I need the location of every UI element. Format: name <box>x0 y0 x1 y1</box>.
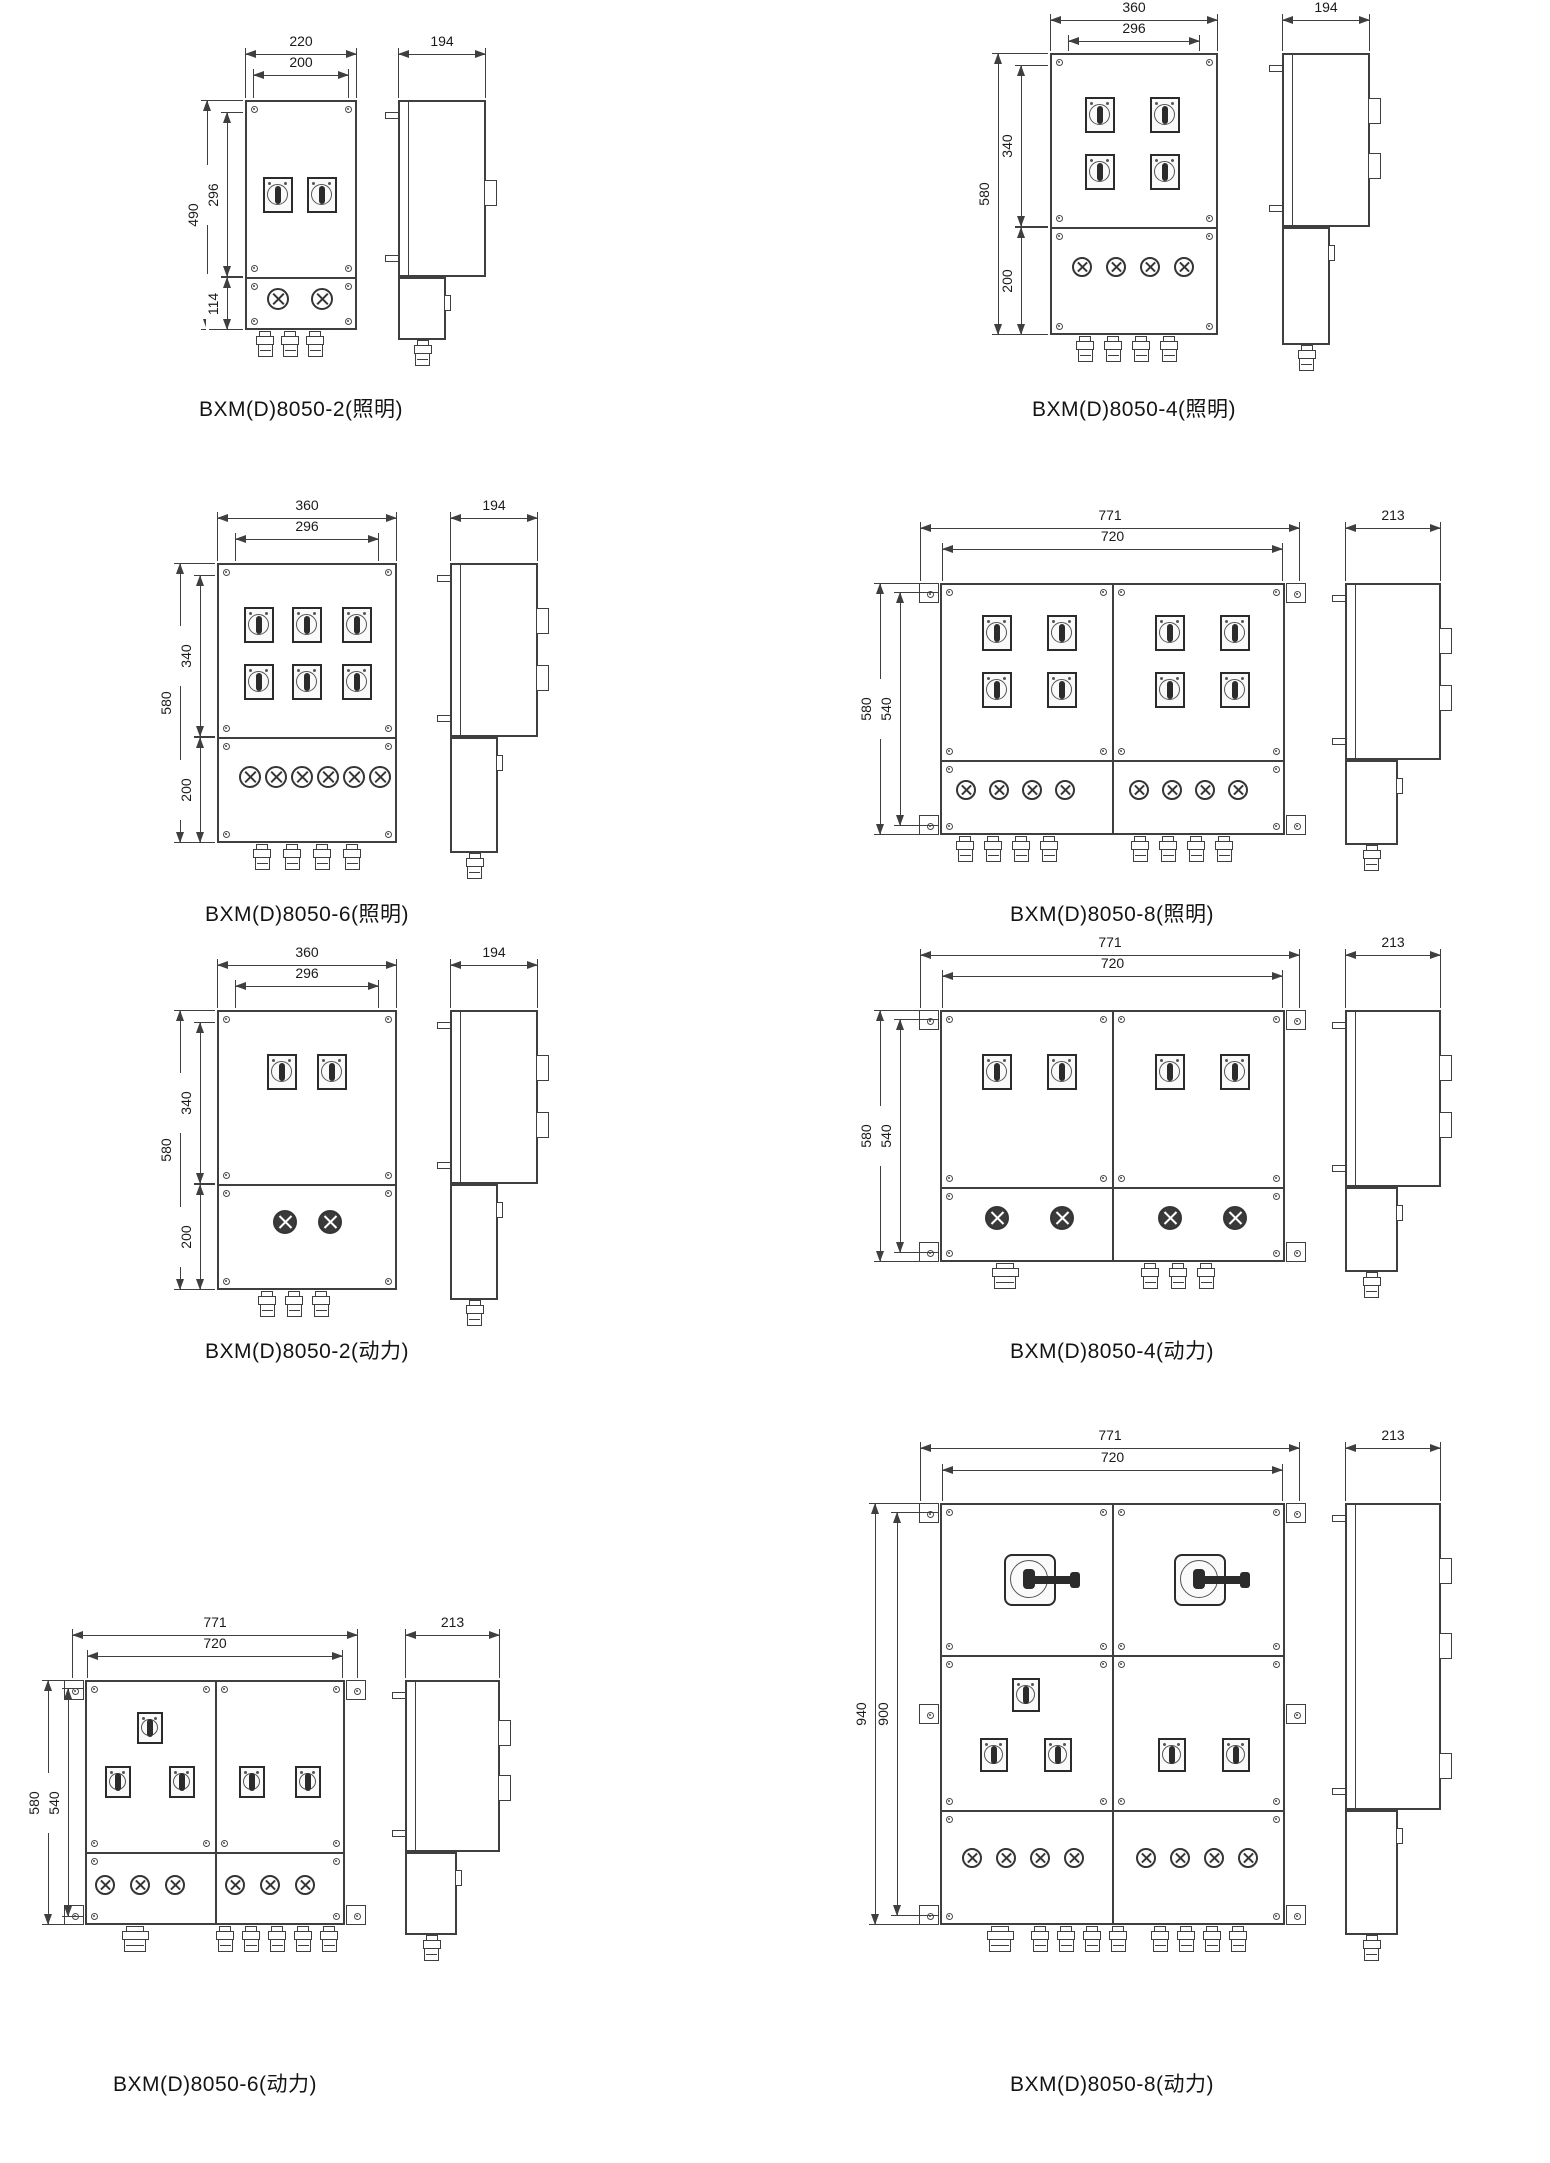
door-screw <box>1118 1175 1125 1182</box>
door-screw <box>333 1858 340 1865</box>
door-screw <box>927 823 934 830</box>
door-screw <box>251 265 258 272</box>
switch-mark <box>1155 102 1158 105</box>
dim-extension <box>1068 43 1069 51</box>
mounting-bracket <box>1286 1242 1306 1262</box>
door-screw <box>1056 233 1063 240</box>
side-mounting-tab <box>437 715 451 722</box>
rotary-switch <box>342 607 372 643</box>
switch-lever <box>1059 681 1065 699</box>
door-screw <box>1056 215 1063 222</box>
dim-label: 720 <box>1083 1450 1143 1464</box>
door-screw <box>385 1278 392 1285</box>
indicator-lamp <box>1064 1848 1084 1868</box>
switch-lever <box>275 186 281 204</box>
indicator-lamp <box>1022 780 1042 800</box>
dim-extension <box>202 1289 215 1290</box>
indicator-lamp <box>295 1875 315 1895</box>
lower-section-divider <box>85 1852 345 1854</box>
dim-extension <box>920 957 921 1008</box>
door-screw <box>1294 1913 1301 1920</box>
side-junction-box <box>536 1055 549 1081</box>
rotary-switch <box>1150 97 1180 133</box>
dim-extension <box>87 1658 88 1678</box>
dim-line <box>942 1470 1283 1471</box>
dim-line <box>1345 955 1441 956</box>
switch-mark <box>265 612 268 615</box>
lower-section-divider <box>217 1184 397 1186</box>
dim-arrow-up-icon <box>203 100 211 111</box>
switch-lever <box>1167 681 1173 699</box>
door-screw <box>946 1509 953 1516</box>
switch-lever <box>147 1719 153 1737</box>
door-screw <box>385 725 392 732</box>
dim-arrow-left-icon <box>942 1466 953 1474</box>
door-screw <box>223 1278 230 1285</box>
lower-section-divider <box>940 1187 1285 1189</box>
door-screw <box>1118 1509 1125 1516</box>
tier-divider-horizontal <box>940 1655 1285 1657</box>
dim-arrow-left-icon <box>920 951 931 959</box>
dim-arrow-left-icon <box>72 1631 83 1639</box>
switch-mark <box>313 669 316 672</box>
dim-line <box>450 965 538 966</box>
rotary-switch <box>1155 672 1185 708</box>
dim-label: 771 <box>1080 508 1140 522</box>
side-mounting-tab <box>1332 738 1346 745</box>
indicator-lamp <box>317 766 339 788</box>
lower-section-divider <box>1050 227 1218 229</box>
indicator-lamp <box>1136 1848 1156 1868</box>
switch-mark <box>312 1771 315 1774</box>
pushbutton <box>1158 1206 1182 1230</box>
dim-extension <box>942 1472 943 1501</box>
dim-extension <box>942 551 943 581</box>
indicator-lamp <box>1030 1848 1050 1868</box>
dim-extension <box>1299 1450 1300 1501</box>
switch-mark <box>1241 620 1244 623</box>
dim-arrow-left-icon <box>217 514 228 522</box>
switch-lever <box>994 681 1000 699</box>
dim-extension <box>877 1924 938 1925</box>
door-screw <box>385 1016 392 1023</box>
door-screw <box>946 1816 953 1823</box>
indicator-lamp <box>1228 780 1248 800</box>
switch-mark <box>284 182 287 185</box>
mounting-bracket <box>1286 583 1306 603</box>
side-cover-line <box>408 102 409 275</box>
switch-mark <box>1063 1743 1066 1746</box>
door-screw <box>385 1172 392 1179</box>
lower-section-divider <box>940 1810 1285 1812</box>
dim-arrow-up-icon <box>994 53 1002 64</box>
dim-label: 580 <box>859 679 873 739</box>
door-screw <box>946 1643 953 1650</box>
side-junction-box <box>1439 1633 1452 1659</box>
door-screw <box>91 1858 98 1865</box>
switch-mark <box>249 612 252 615</box>
dim-extension <box>209 100 243 101</box>
switch-mark <box>300 1771 303 1774</box>
switch-mark <box>249 669 252 672</box>
cable-gland-ridge <box>1108 355 1119 356</box>
side-view-body <box>1345 583 1441 760</box>
door-screw <box>223 725 230 732</box>
door-screw <box>946 748 953 755</box>
door-screw <box>1118 1661 1125 1668</box>
door-screw <box>1100 589 1107 596</box>
door-screw <box>1273 1509 1280 1516</box>
dim-extension <box>342 1658 343 1678</box>
rotary-switch <box>982 1054 1012 1090</box>
side-cover-line <box>460 1012 461 1182</box>
dim-extension <box>1282 978 1283 1008</box>
dim-label: 194 <box>464 498 524 512</box>
side-junction-box <box>1368 98 1381 124</box>
side-lower-body <box>450 1184 498 1300</box>
switch-mark <box>1225 1059 1228 1062</box>
dim-extension <box>356 56 357 98</box>
door-screw <box>223 1016 230 1023</box>
indicator-lamp <box>1129 780 1149 800</box>
indicator-lamp <box>267 288 289 310</box>
cable-gland-ridge <box>347 863 358 864</box>
dim-line <box>998 53 999 335</box>
dim-label: 771 <box>1080 935 1140 949</box>
dim-extension <box>1440 957 1441 1008</box>
door-screw <box>1100 1798 1107 1805</box>
door-screw <box>1100 1509 1107 1516</box>
indicator-lamp <box>260 1875 280 1895</box>
cable-gland-ridge <box>1301 364 1312 365</box>
door-screw <box>946 1798 953 1805</box>
rotary-switch <box>342 664 372 700</box>
side-junction-box <box>1439 1558 1452 1584</box>
cable-gland-ridge <box>262 1310 273 1311</box>
cable-gland-ridge <box>469 1319 480 1320</box>
door-screw <box>1273 1175 1280 1182</box>
side-view-body <box>398 100 486 277</box>
door-screw <box>354 1688 361 1695</box>
panel-divider-vertical <box>1112 583 1114 835</box>
door-screw <box>1273 1193 1280 1200</box>
dim-line <box>450 518 538 519</box>
switch-mark <box>1163 1743 1166 1746</box>
dim-label: 220 <box>271 34 331 48</box>
mounting-bracket <box>919 1010 939 1030</box>
cable-gland-ridge <box>1233 1945 1244 1946</box>
rotary-switch <box>292 607 322 643</box>
door-screw <box>251 318 258 325</box>
door-screw <box>927 1712 934 1719</box>
dim-arrow-up-icon <box>871 1503 879 1514</box>
cable-gland-ridge <box>1366 1954 1377 1955</box>
dim-extension <box>1299 957 1300 1008</box>
door-screw <box>927 1250 934 1257</box>
diagram-caption: BXM(D)8050-2(照明) <box>131 397 471 423</box>
dim-extension <box>1023 65 1048 66</box>
side-view-body <box>1345 1010 1441 1187</box>
dim-label: 580 <box>859 1106 873 1166</box>
switch-mark <box>1106 159 1109 162</box>
dim-extension <box>1282 551 1283 581</box>
door-screw <box>1206 59 1213 66</box>
side-latch <box>1328 245 1335 261</box>
door-screw <box>1206 215 1213 222</box>
dim-label: 580 <box>159 1120 173 1180</box>
door-screw <box>385 569 392 576</box>
cable-gland-ridge <box>1061 1945 1072 1946</box>
switch-mark <box>1160 620 1163 623</box>
dim-arrow-left-icon <box>920 1444 931 1452</box>
dim-extension <box>396 967 397 1008</box>
switch-lever <box>304 616 310 634</box>
door-screw <box>946 1175 953 1182</box>
rotary-switch <box>1220 1054 1250 1090</box>
door-screw <box>333 1913 340 1920</box>
dim-line <box>68 1688 69 1917</box>
switch-lever <box>994 1063 1000 1081</box>
switch-mark <box>985 1743 988 1746</box>
mounting-bracket <box>919 583 939 603</box>
dim-arrow-up-icon <box>196 1022 204 1033</box>
side-latch <box>444 295 451 311</box>
rotary-switch <box>1044 1738 1072 1772</box>
switch-mark <box>363 612 366 615</box>
dim-extension <box>398 56 399 98</box>
rotary-switch <box>1047 672 1077 708</box>
dim-arrow-up-icon <box>1017 227 1025 238</box>
indicator-lamp <box>225 1875 245 1895</box>
dim-line <box>1021 65 1022 227</box>
switch-mark <box>1160 1059 1163 1062</box>
dim-extension <box>882 1010 938 1011</box>
door-screw <box>221 1840 228 1847</box>
switch-mark <box>1225 620 1228 623</box>
dim-arrow-left-icon <box>450 961 461 969</box>
switch-mark <box>338 1059 341 1062</box>
dim-extension <box>348 77 349 98</box>
side-junction-box <box>498 1720 511 1746</box>
door-screw <box>345 283 352 290</box>
dim-extension <box>245 56 246 98</box>
dim-extension <box>357 1637 358 1678</box>
side-latch <box>496 1202 503 1218</box>
mounting-bracket <box>1286 815 1306 835</box>
switch-lever <box>319 186 325 204</box>
switch-lever <box>304 673 310 691</box>
switch-mark <box>1241 1743 1244 1746</box>
dim-arrow-left-icon <box>87 1652 98 1660</box>
mounting-bracket <box>919 1503 939 1523</box>
mounting-bracket <box>919 1704 939 1724</box>
pushbutton <box>1223 1206 1247 1230</box>
diagram-caption: BXM(D)8050-4(动力) <box>942 1339 1282 1365</box>
side-lower-body <box>398 277 446 340</box>
front-view-enclosure <box>1050 53 1218 335</box>
door-screw <box>1273 1913 1280 1920</box>
dim-label: 200 <box>1000 251 1014 311</box>
dim-extension <box>229 112 243 113</box>
door-screw <box>333 1840 340 1847</box>
cable-gland-ridge <box>1155 1945 1166 1946</box>
rotary-switch <box>1085 97 1115 133</box>
door-screw <box>1118 1798 1125 1805</box>
cable-gland-ridge <box>310 350 321 351</box>
dim-extension <box>50 1680 83 1681</box>
cable-gland-ridge <box>1113 1945 1124 1946</box>
rotary-switch <box>1085 154 1115 190</box>
switch-mark <box>1068 1059 1071 1062</box>
front-view-enclosure <box>217 563 397 843</box>
dim-extension <box>202 1022 215 1023</box>
dim-label: 360 <box>277 945 337 959</box>
dim-extension <box>378 988 379 1008</box>
dim-arrow-left-icon <box>920 524 931 532</box>
pushbutton <box>273 1210 297 1234</box>
cable-gland-ridge <box>1044 855 1055 856</box>
dim-arrow-left-icon <box>235 982 246 990</box>
switch-mark <box>272 1059 275 1062</box>
switch-lever <box>1232 624 1238 642</box>
dim-extension <box>229 277 243 278</box>
switch-mark <box>1171 102 1174 105</box>
door-screw <box>946 1193 953 1200</box>
door-screw <box>91 1913 98 1920</box>
mounting-bracket <box>1286 1503 1306 1523</box>
switch-mark <box>265 669 268 672</box>
side-junction-box <box>536 608 549 634</box>
switch-lever <box>256 616 262 634</box>
door-screw <box>1100 1175 1107 1182</box>
dim-label: 340 <box>179 626 193 686</box>
side-latch <box>496 755 503 771</box>
dim-extension <box>902 592 938 593</box>
dim-extension <box>378 541 379 561</box>
diagram-caption: BXM(D)8050-2(动力) <box>137 1339 477 1365</box>
dim-extension <box>450 967 451 1008</box>
dim-line <box>235 986 379 987</box>
rotary-switch <box>267 1054 297 1090</box>
door-screw <box>1118 589 1125 596</box>
dim-extension <box>877 1503 938 1504</box>
cable-gland-ridge <box>426 1954 437 1955</box>
door-screw <box>1206 323 1213 330</box>
side-view-body <box>450 563 538 737</box>
side-lower-body <box>1345 1810 1398 1935</box>
cable-gland-ridge <box>246 1945 257 1946</box>
side-view-body <box>405 1680 500 1852</box>
rotary-switch <box>105 1766 131 1798</box>
indicator-lamp <box>962 1848 982 1868</box>
indicator-lamp <box>1072 257 1092 277</box>
rotary-switch <box>1150 154 1180 190</box>
dim-extension <box>1345 530 1346 581</box>
door-screw <box>251 106 258 113</box>
switch-lever <box>1059 624 1065 642</box>
drawing-canvas: 220200490296114194 360296580340200194 36… <box>0 0 1550 2163</box>
dim-line <box>200 1184 201 1290</box>
switch-mark <box>1068 677 1071 680</box>
dim-label: 490 <box>186 185 200 245</box>
dim-arrow-left-icon <box>235 535 246 543</box>
side-mounting-tab <box>385 112 399 119</box>
cable-gland-ridge <box>126 1945 145 1946</box>
side-junction-box <box>1439 1112 1452 1138</box>
pushbutton <box>318 1210 342 1234</box>
switch-lever <box>1167 1063 1173 1081</box>
side-mounting-tab <box>437 575 451 582</box>
dim-arrow-left-icon <box>1345 1444 1356 1452</box>
dim-extension <box>485 56 486 98</box>
door-screw <box>1273 1250 1280 1257</box>
dim-line <box>227 112 228 277</box>
side-mounting-tab <box>392 1692 406 1699</box>
side-view-body <box>1282 53 1370 227</box>
dim-extension <box>1050 22 1051 51</box>
rotary-switch <box>1047 615 1077 651</box>
side-mounting-tab <box>437 1162 451 1169</box>
side-latch <box>1396 1828 1403 1844</box>
cable-gland-ridge <box>1173 1282 1184 1283</box>
switch-mark <box>122 1771 125 1774</box>
side-cover-line <box>460 565 461 735</box>
dim-line <box>942 549 1283 550</box>
side-mounting-tab <box>1269 65 1283 72</box>
switch-lever <box>354 673 360 691</box>
cable-gland-ridge <box>988 855 999 856</box>
switch-lever <box>1232 1063 1238 1081</box>
rotary-switch <box>239 1766 265 1798</box>
switch-mark <box>1003 620 1006 623</box>
rotary-switch <box>1155 1054 1185 1090</box>
dim-extension <box>202 575 215 576</box>
cable-gland-ridge <box>272 1945 283 1946</box>
switch-mark <box>1049 1743 1052 1746</box>
door-screw <box>946 1913 953 1920</box>
switch-lever <box>305 1773 311 1791</box>
switch-lever <box>1232 681 1238 699</box>
side-junction-box <box>536 1112 549 1138</box>
dim-label: 540 <box>47 1773 61 1833</box>
dim-line <box>1345 1448 1441 1449</box>
indicator-lamp <box>1174 257 1194 277</box>
dim-label: 540 <box>879 1106 893 1166</box>
switch-mark <box>1052 1059 1055 1062</box>
dim-arrow-up-icon <box>1017 65 1025 76</box>
switch-lever <box>279 1063 285 1081</box>
dim-label: 194 <box>464 945 524 959</box>
side-junction-box <box>1439 1055 1452 1081</box>
pushbutton <box>1050 1206 1074 1230</box>
switch-mark <box>1003 677 1006 680</box>
indicator-lamp <box>291 766 313 788</box>
switch-mark <box>297 669 300 672</box>
dim-extension <box>1282 22 1283 51</box>
switch-lever <box>1169 1746 1175 1764</box>
door-screw <box>1118 1016 1125 1023</box>
rotary-switch <box>317 1054 347 1090</box>
switch-lever <box>1233 1746 1239 1764</box>
diagram-caption: BXM(D)8050-6(动力) <box>45 2072 385 2098</box>
switch-mark <box>297 612 300 615</box>
handle-grip <box>1070 1572 1080 1588</box>
rotary-switch <box>1155 615 1185 651</box>
mounting-bracket <box>1286 1905 1306 1925</box>
dim-extension <box>882 1261 938 1262</box>
cable-gland-ridge <box>1163 855 1174 856</box>
switch-lever <box>1097 163 1103 181</box>
